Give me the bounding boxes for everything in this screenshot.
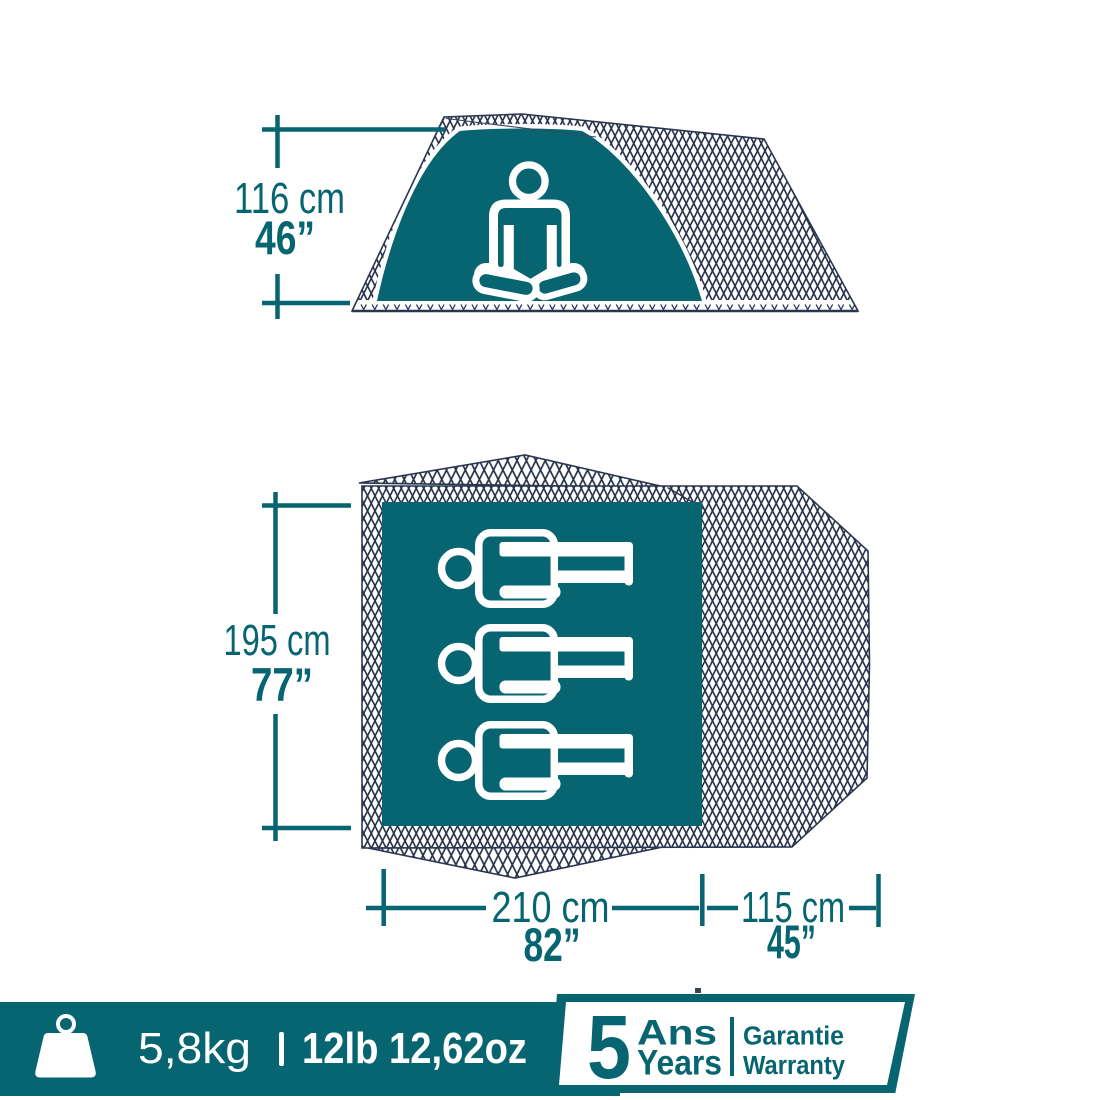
- svg-text:82”: 82”: [524, 918, 581, 971]
- svg-text:45”: 45”: [767, 915, 816, 968]
- svg-text:12lb 12,62oz: 12lb 12,62oz: [302, 1024, 527, 1073]
- svg-text:5: 5: [587, 998, 631, 1098]
- svg-text:5,8kg: 5,8kg: [138, 1024, 251, 1073]
- svg-text:46”: 46”: [255, 211, 315, 264]
- svg-text:Garantie: Garantie: [743, 1023, 844, 1051]
- svg-text:77”: 77”: [251, 658, 313, 711]
- svg-text:Years: Years: [637, 1044, 722, 1083]
- svg-text:Warranty: Warranty: [743, 1052, 846, 1080]
